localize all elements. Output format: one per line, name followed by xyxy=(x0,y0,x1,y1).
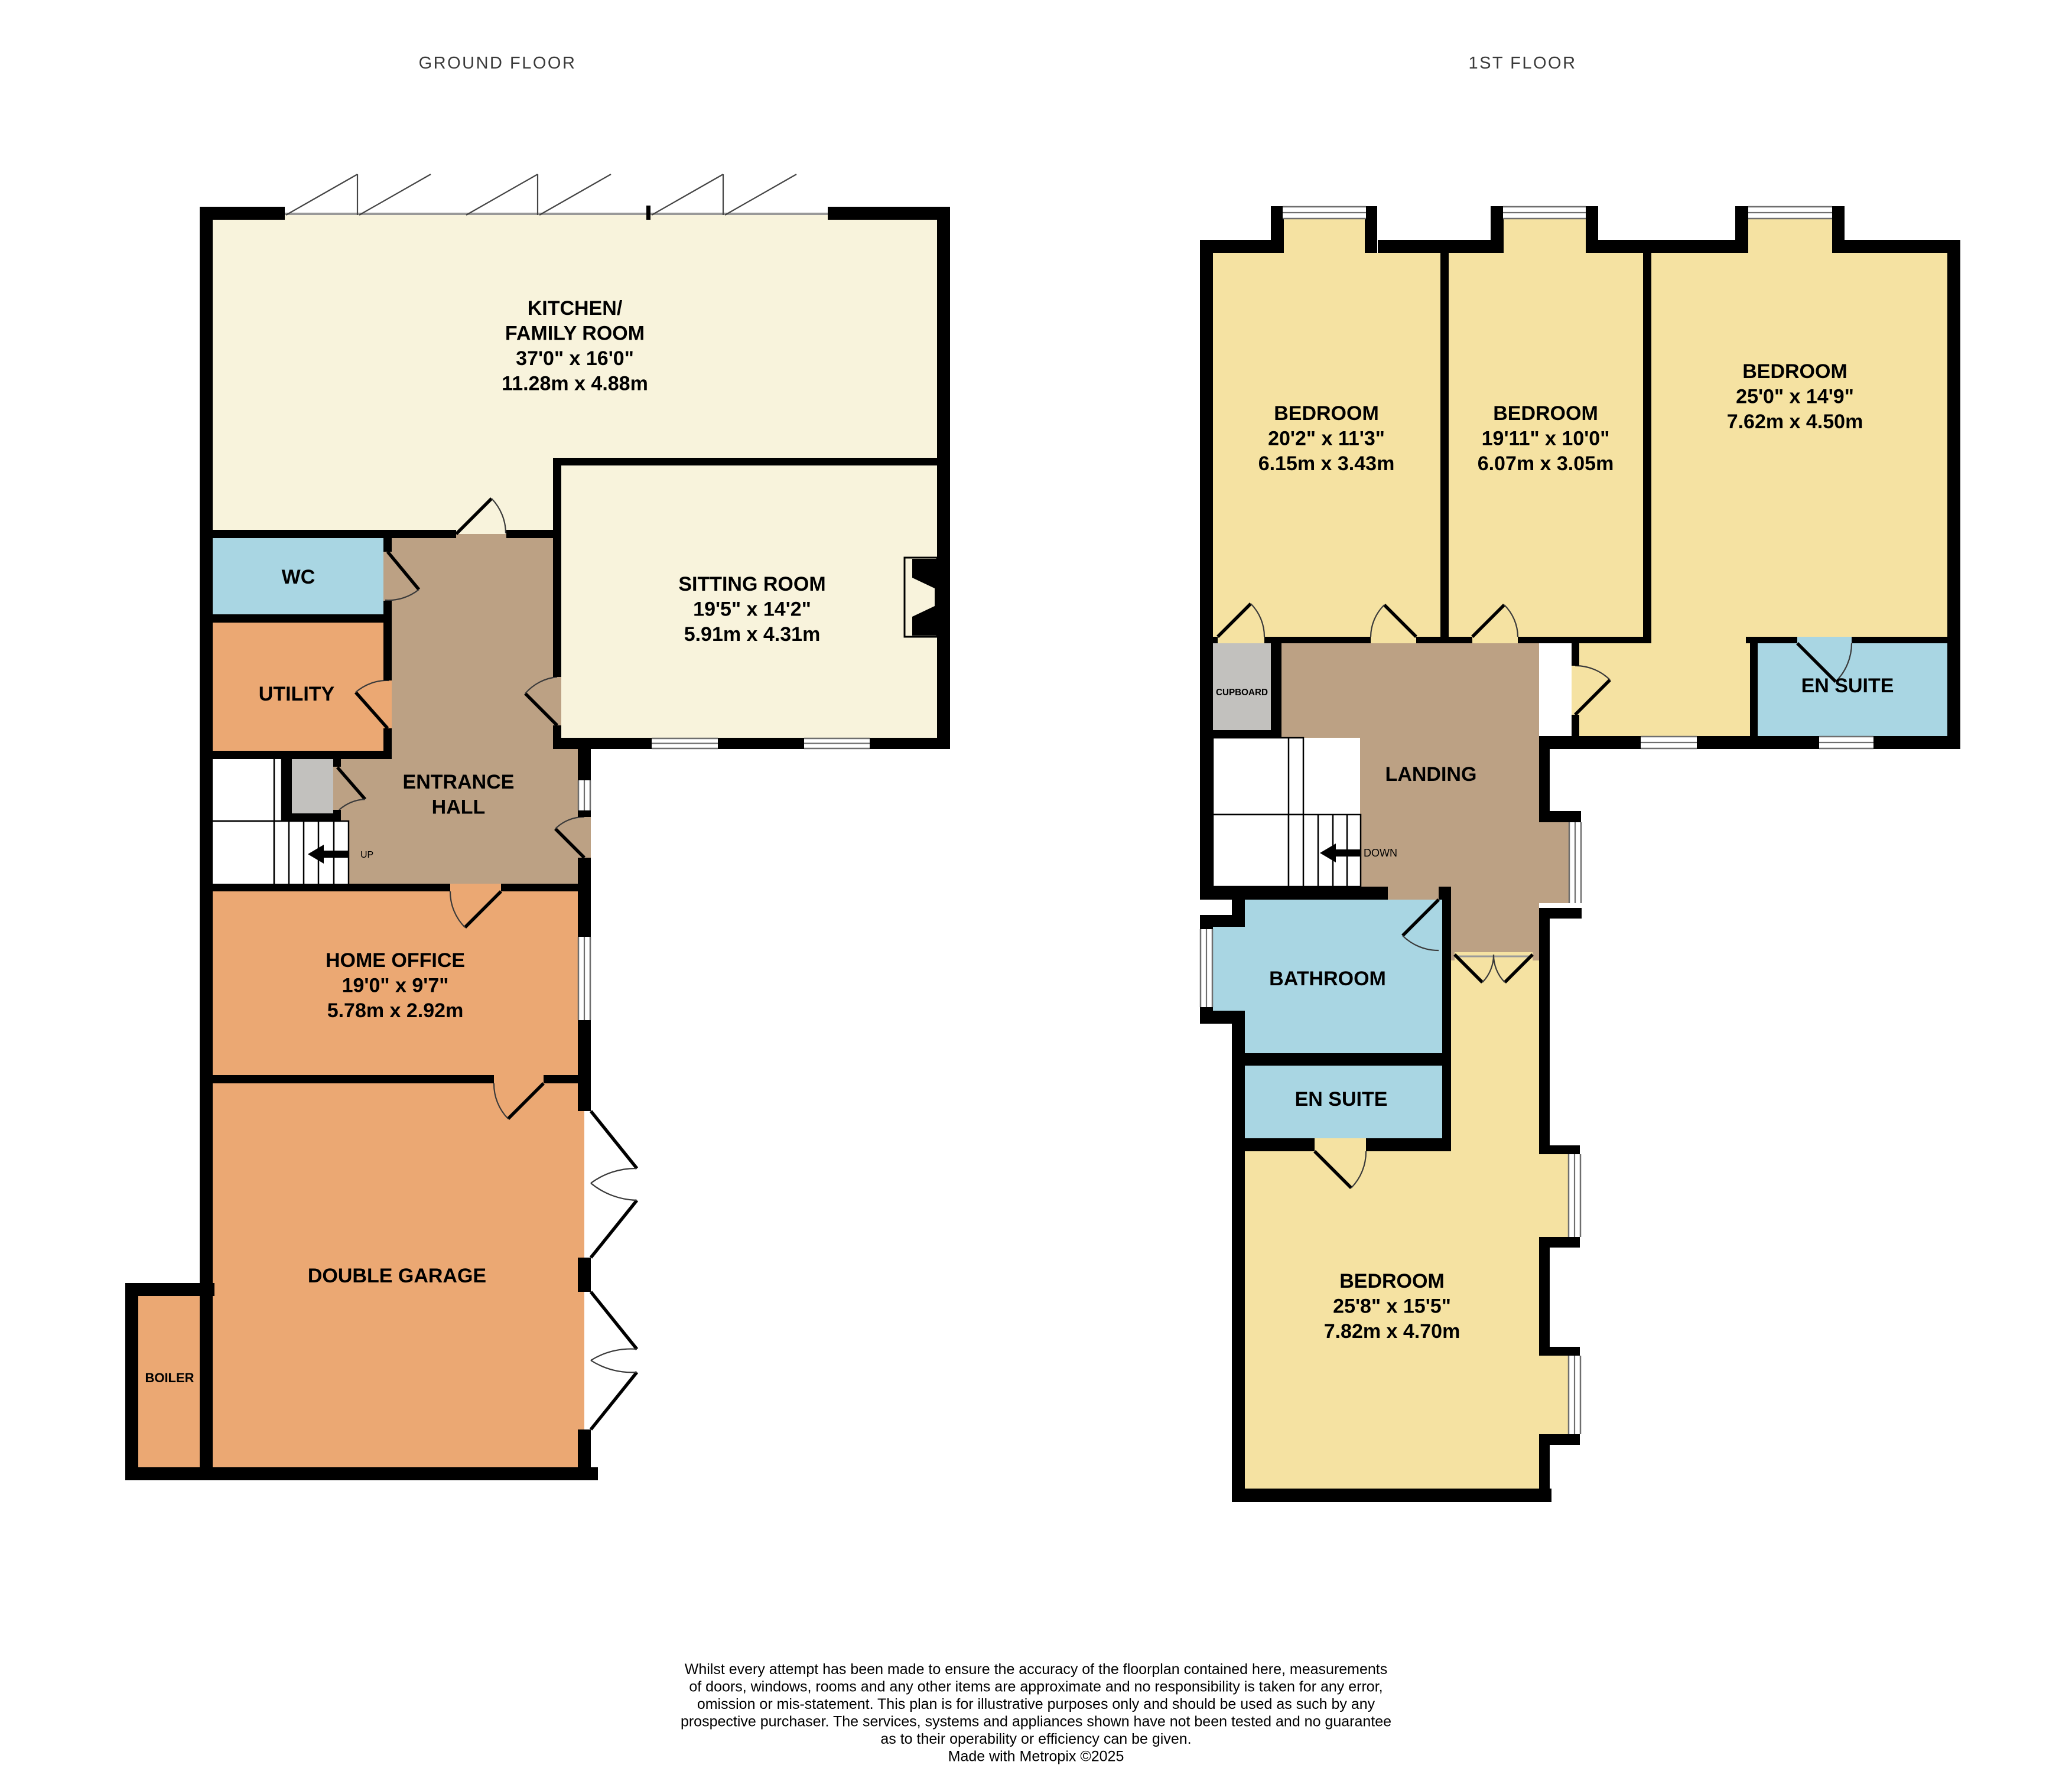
svg-text:KITCHEN/: KITCHEN/ xyxy=(528,297,623,320)
svg-text:20'2" x 11'3": 20'2" x 11'3" xyxy=(1268,428,1385,450)
svg-text:37'0" x 16'0": 37'0" x 16'0" xyxy=(516,347,634,370)
svg-text:prospective purchaser. The ser: prospective purchaser. The services, sys… xyxy=(681,1714,1391,1730)
svg-text:FAMILY ROOM: FAMILY ROOM xyxy=(505,323,645,345)
svg-text:BATHROOM: BATHROOM xyxy=(1269,968,1386,990)
svg-text:6.15m x 3.43m: 6.15m x 3.43m xyxy=(1258,452,1395,475)
svg-text:HALL: HALL xyxy=(432,796,486,819)
svg-text:19'11" x 10'0": 19'11" x 10'0" xyxy=(1482,428,1610,450)
svg-text:BEDROOM: BEDROOM xyxy=(1274,402,1379,425)
svg-text:DOUBLE GARAGE: DOUBLE GARAGE xyxy=(308,1265,486,1287)
svg-text:SITTING ROOM: SITTING ROOM xyxy=(678,573,825,595)
svg-text:25'8" x 15'5": 25'8" x 15'5" xyxy=(1333,1295,1451,1318)
svg-text:of doors, windows, rooms and a: of doors, windows, rooms and any other i… xyxy=(689,1679,1383,1695)
svg-text:EN SUITE: EN SUITE xyxy=(1295,1088,1388,1111)
svg-text:LANDING: LANDING xyxy=(1385,763,1477,786)
svg-text:7.82m x 4.70m: 7.82m x 4.70m xyxy=(1324,1320,1461,1343)
svg-text:EN SUITE: EN SUITE xyxy=(1801,675,1894,697)
svg-text:DOWN: DOWN xyxy=(1364,847,1397,859)
svg-text:HOME OFFICE: HOME OFFICE xyxy=(326,949,465,972)
svg-text:WC: WC xyxy=(282,566,315,588)
svg-text:BEDROOM: BEDROOM xyxy=(1742,360,1847,383)
svg-text:1ST FLOOR: 1ST FLOOR xyxy=(1468,54,1576,73)
svg-text:6.07m x 3.05m: 6.07m x 3.05m xyxy=(1478,452,1614,475)
svg-text:Whilst every attempt has been: Whilst every attempt has been made to en… xyxy=(685,1661,1388,1678)
svg-text:CUPBOARD: CUPBOARD xyxy=(1216,688,1268,698)
svg-text:5.78m x 2.92m: 5.78m x 2.92m xyxy=(327,999,464,1022)
svg-text:Made with Metropix ©2025: Made with Metropix ©2025 xyxy=(948,1748,1124,1765)
svg-text:BEDROOM: BEDROOM xyxy=(1339,1270,1445,1292)
svg-text:5.91m x 4.31m: 5.91m x 4.31m xyxy=(684,623,821,646)
svg-text:ENTRANCE: ENTRANCE xyxy=(403,771,515,793)
svg-text:BOILER: BOILER xyxy=(145,1370,194,1385)
svg-text:GROUND FLOOR: GROUND FLOOR xyxy=(419,54,577,73)
svg-text:7.62m x 4.50m: 7.62m x 4.50m xyxy=(1727,411,1863,433)
svg-text:omission or mis-statement. Thi: omission or mis-statement. This plan is … xyxy=(697,1696,1375,1712)
svg-text:UTILITY: UTILITY xyxy=(259,683,335,705)
svg-text:BEDROOM: BEDROOM xyxy=(1493,402,1598,425)
svg-text:UP: UP xyxy=(360,850,373,860)
svg-text:as to their operability or eff: as to their operability or efficiency ca… xyxy=(880,1731,1191,1747)
svg-text:19'0" x 9'7": 19'0" x 9'7" xyxy=(342,975,449,997)
svg-text:25'0" x 14'9": 25'0" x 14'9" xyxy=(1736,386,1854,408)
svg-text:19'5" x 14'2": 19'5" x 14'2" xyxy=(693,598,811,621)
svg-text:11.28m x 4.88m: 11.28m x 4.88m xyxy=(502,373,648,395)
